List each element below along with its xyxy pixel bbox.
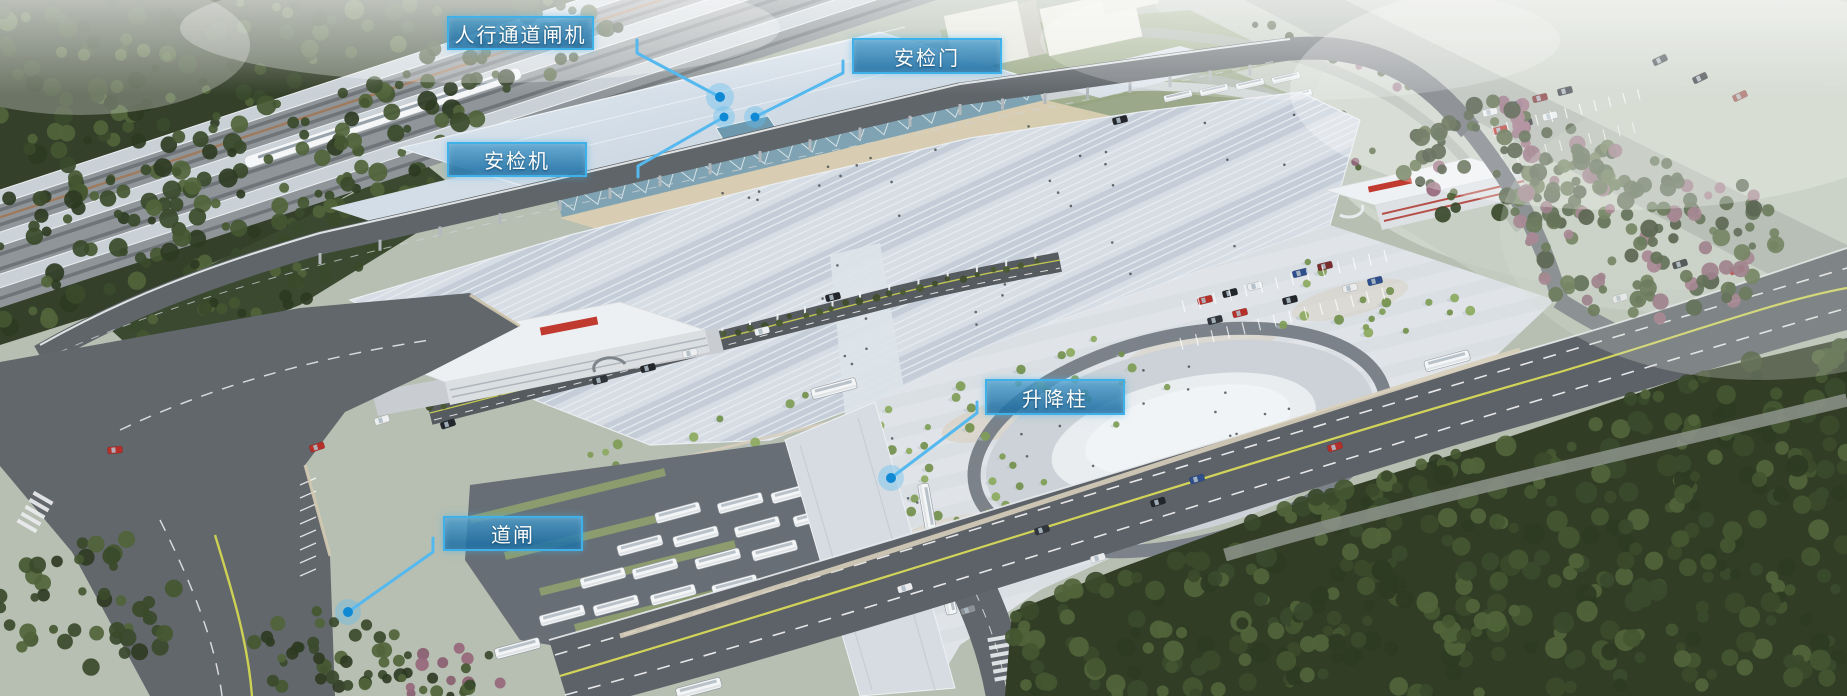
callout-label: 道闸 — [491, 519, 535, 548]
callout-road-barrier-gate[interactable]: 道闸 — [443, 516, 583, 551]
callout-pedestrian-channel-gate[interactable]: 人行通道闸机 — [447, 16, 594, 50]
callout-lifting-bollard[interactable]: 升降柱 — [985, 379, 1125, 415]
callout-label: 安检门 — [894, 42, 960, 71]
callout-layer: 人行通道闸机安检门安检机升降柱道闸 — [0, 0, 1847, 696]
callout-security-door[interactable]: 安检门 — [852, 38, 1002, 74]
callout-label: 人行通道闸机 — [455, 19, 587, 48]
callout-label: 安检机 — [484, 145, 550, 174]
annotated-aerial-view: 人行通道闸机安检门安检机升降柱道闸 — [0, 0, 1847, 696]
callout-label: 升降柱 — [1022, 383, 1088, 412]
callout-security-scanner[interactable]: 安检机 — [447, 142, 587, 177]
